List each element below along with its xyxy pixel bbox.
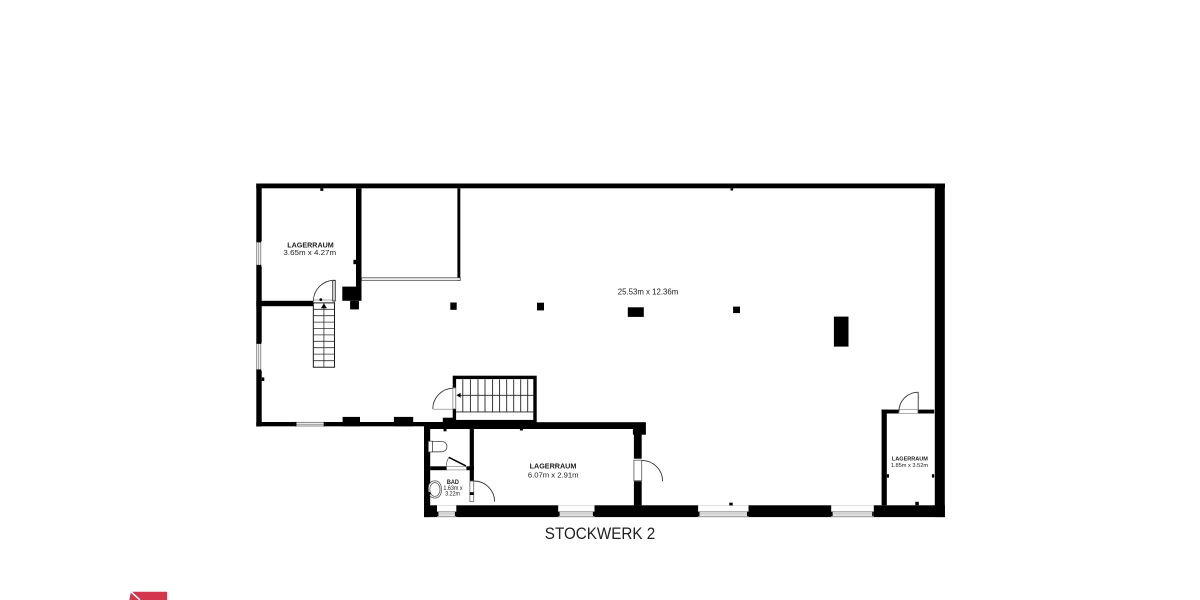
svg-text:BAD: BAD (447, 480, 460, 486)
svg-text:25.53m x 12.36m: 25.53m x 12.36m (618, 286, 679, 296)
svg-text:6.07m x 2.91m: 6.07m x 2.91m (528, 470, 579, 479)
svg-text:STOCKWERK 2: STOCKWERK 2 (545, 525, 655, 543)
svg-text:LAGERRAUM: LAGERRAUM (530, 462, 577, 471)
svg-text:1.85m x 3.52m: 1.85m x 3.52m (891, 463, 929, 469)
svg-text:3.22m: 3.22m (445, 492, 460, 498)
svg-text:LAGERRAUM: LAGERRAUM (892, 457, 928, 463)
svg-text:3.65m x 4.27m: 3.65m x 4.27m (283, 248, 336, 257)
